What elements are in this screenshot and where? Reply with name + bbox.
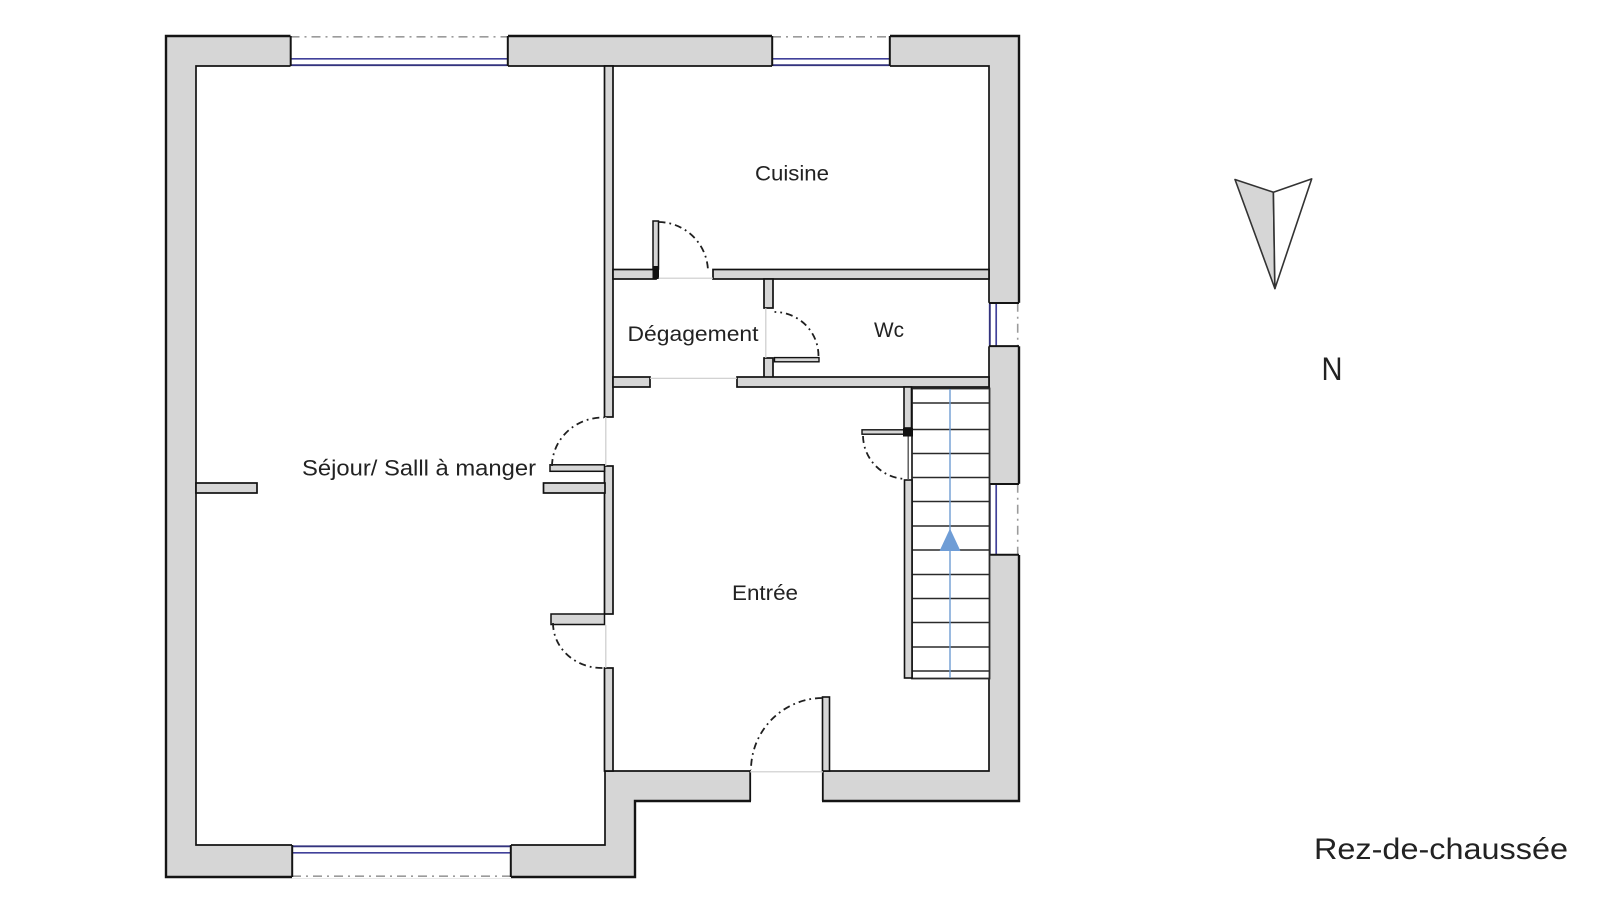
svg-text:Wc: Wc <box>874 319 904 342</box>
svg-text:N: N <box>1322 351 1343 387</box>
svg-text:Dégagement: Dégagement <box>628 323 759 346</box>
svg-text:Séjour/ Salll à manger: Séjour/ Salll à manger <box>302 456 536 481</box>
svg-text:Rez-de-chaussée: Rez-de-chaussée <box>1314 833 1568 866</box>
svg-text:Entrée: Entrée <box>732 582 798 605</box>
svg-text:Cuisine: Cuisine <box>755 163 829 186</box>
